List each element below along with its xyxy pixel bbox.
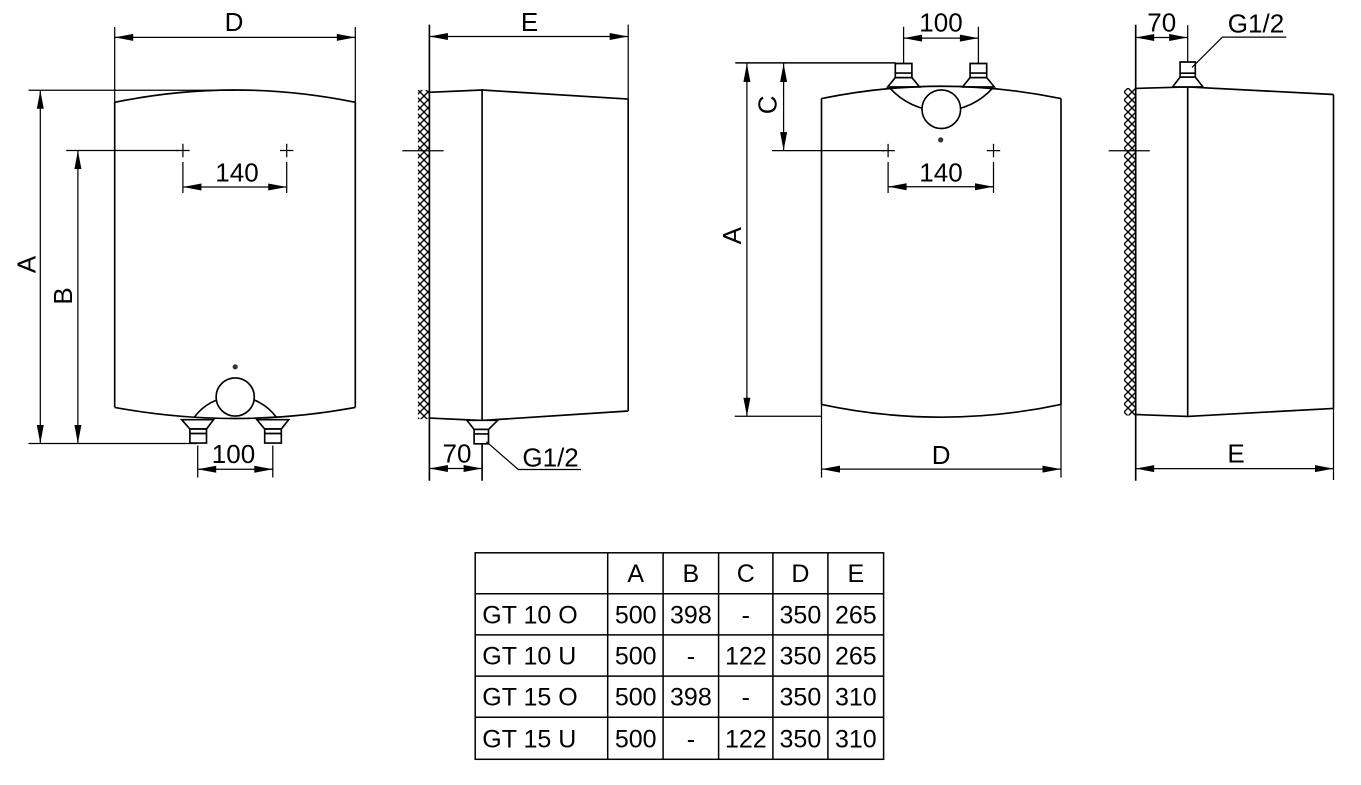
svg-text:A: A bbox=[627, 560, 644, 588]
svg-text:B: B bbox=[683, 560, 700, 588]
svg-text:D: D bbox=[932, 440, 951, 470]
svg-text:310: 310 bbox=[835, 684, 877, 712]
svg-text:-: - bbox=[687, 643, 695, 671]
svg-text:500: 500 bbox=[615, 725, 657, 753]
svg-text:122: 122 bbox=[725, 725, 767, 753]
svg-text:-: - bbox=[742, 601, 750, 629]
svg-text:D: D bbox=[225, 7, 244, 37]
svg-text:398: 398 bbox=[670, 684, 712, 712]
svg-text:350: 350 bbox=[780, 601, 822, 629]
svg-text:-: - bbox=[742, 684, 750, 712]
svg-text:GT 15 U: GT 15 U bbox=[482, 725, 576, 753]
svg-text:C: C bbox=[737, 560, 755, 588]
svg-text:E: E bbox=[521, 7, 538, 37]
svg-text:D: D bbox=[791, 560, 809, 588]
svg-text:140: 140 bbox=[919, 158, 962, 188]
svg-text:100: 100 bbox=[212, 439, 255, 469]
svg-text:500: 500 bbox=[615, 601, 657, 629]
svg-text:310: 310 bbox=[835, 725, 877, 753]
svg-text:500: 500 bbox=[615, 643, 657, 671]
svg-text:398: 398 bbox=[670, 601, 712, 629]
svg-text:350: 350 bbox=[780, 643, 822, 671]
svg-text:GT 15 O: GT 15 O bbox=[482, 684, 577, 712]
svg-text:GT 10 U: GT 10 U bbox=[482, 643, 576, 671]
svg-text:350: 350 bbox=[780, 725, 822, 753]
svg-text:E: E bbox=[1227, 439, 1244, 469]
svg-text:70: 70 bbox=[1147, 8, 1176, 38]
svg-text:265: 265 bbox=[835, 601, 877, 629]
svg-text:500: 500 bbox=[615, 684, 657, 712]
svg-text:G1/2: G1/2 bbox=[1228, 9, 1284, 39]
svg-text:350: 350 bbox=[780, 684, 822, 712]
svg-text:100: 100 bbox=[919, 8, 962, 38]
svg-text:140: 140 bbox=[215, 158, 258, 188]
svg-text:C: C bbox=[752, 95, 782, 114]
svg-text:A: A bbox=[11, 255, 41, 273]
svg-text:B: B bbox=[48, 287, 78, 304]
svg-text:70: 70 bbox=[443, 438, 472, 468]
svg-text:E: E bbox=[847, 560, 864, 588]
svg-text:265: 265 bbox=[835, 643, 877, 671]
svg-text:-: - bbox=[687, 725, 695, 753]
svg-text:GT 10 O: GT 10 O bbox=[482, 601, 577, 629]
svg-text:A: A bbox=[717, 226, 747, 244]
svg-text:G1/2: G1/2 bbox=[522, 442, 578, 472]
svg-text:122: 122 bbox=[725, 643, 767, 671]
